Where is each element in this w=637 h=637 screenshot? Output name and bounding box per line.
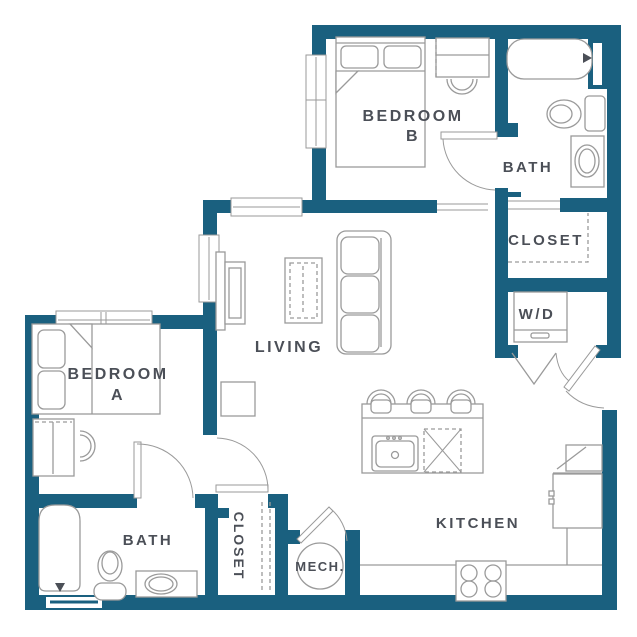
door-wd-bifold	[512, 353, 569, 384]
floor-plan: BEDROOM B BATH CLOSET W/D LIVING BEDROOM…	[0, 0, 637, 637]
bar-stool	[407, 390, 435, 413]
furniture-kitchen	[360, 390, 602, 601]
pillow	[38, 371, 65, 409]
wall-bedroom-b-bottom	[312, 200, 437, 213]
label-wd: W/D	[519, 306, 556, 323]
furniture-bath-a	[39, 505, 197, 600]
desk-chair-b	[447, 79, 477, 94]
closet-a-shelf	[262, 502, 270, 590]
refrigerator	[549, 474, 602, 528]
sink-vanity-b	[571, 136, 604, 187]
wall-niche-slot	[593, 43, 602, 85]
window-bedroom-b	[306, 55, 326, 148]
wall-bath-b-left-tab	[508, 123, 518, 137]
cushion	[341, 276, 379, 313]
wall-bath-b-left	[495, 25, 508, 137]
wall-closet-b-top	[560, 198, 621, 212]
wall-closet-a-tab	[218, 508, 229, 518]
label-closet-b: CLOSET	[508, 232, 584, 249]
wall-closet-column	[495, 188, 508, 358]
label-mech: MECH.	[295, 559, 344, 574]
pillow	[384, 46, 421, 68]
label-kitchen: KITCHEN	[436, 515, 520, 532]
stove	[456, 561, 506, 601]
label-bedroom-b-letter: B	[406, 128, 420, 145]
window-living-top	[231, 198, 302, 216]
pillow	[341, 46, 378, 68]
furniture-living	[216, 231, 391, 416]
desk-b	[436, 38, 489, 77]
pillow	[38, 330, 65, 368]
sink-vanity-a	[136, 571, 197, 597]
label-closet-a: CLOSET	[231, 512, 247, 581]
desk-a	[33, 419, 74, 476]
door-bedroom-a	[134, 442, 193, 498]
door-mech	[297, 507, 347, 543]
island-sink	[372, 436, 418, 471]
label-living: LIVING	[255, 339, 323, 356]
fridge-handle	[549, 499, 554, 504]
window-bath-a	[46, 597, 102, 608]
fridge-handle	[549, 491, 554, 496]
bathtub-b	[507, 39, 592, 79]
door-bath-b	[441, 132, 497, 190]
coffee-table	[285, 258, 322, 323]
toilet-a	[94, 551, 126, 600]
cushion	[341, 315, 379, 352]
desk-chair-a	[80, 431, 95, 461]
end-table	[221, 382, 255, 416]
bar-stool	[367, 390, 395, 413]
floor-plan-canvas: BEDROOM B BATH CLOSET W/D LIVING BEDROOM…	[0, 0, 637, 637]
wall-bedroom-a-bottom	[25, 494, 137, 508]
label-bedroom-a: BEDROOM	[67, 366, 168, 383]
wall-wd-right-foot	[596, 345, 621, 358]
wall-right-upper	[607, 25, 621, 358]
toilet-b	[547, 96, 605, 131]
sofa	[337, 231, 391, 354]
cushion	[341, 237, 379, 274]
wall-mech-right	[345, 530, 360, 610]
label-bath-b: BATH	[503, 159, 554, 176]
wall-closet-a-right	[275, 496, 288, 610]
upper-cabinet	[557, 445, 602, 471]
wall-right-lower	[602, 410, 617, 606]
label-bath-a: BATH	[123, 532, 174, 549]
door-closet-a	[216, 438, 268, 492]
bar-stool	[447, 390, 475, 413]
wall-closet-wd-divider	[495, 278, 621, 292]
opening-closet-b	[508, 197, 560, 213]
wall-mech-tab	[288, 530, 300, 544]
furniture-bedroom-b	[336, 37, 489, 167]
label-bedroom-b: BEDROOM	[362, 108, 463, 125]
label-bedroom-a-letter: A	[111, 387, 125, 404]
opening-bedroom-b	[437, 199, 488, 214]
bathtub-a	[39, 505, 80, 592]
bed-b	[336, 37, 425, 167]
wall-closet-a-left	[205, 497, 218, 610]
tv-console	[216, 252, 245, 330]
